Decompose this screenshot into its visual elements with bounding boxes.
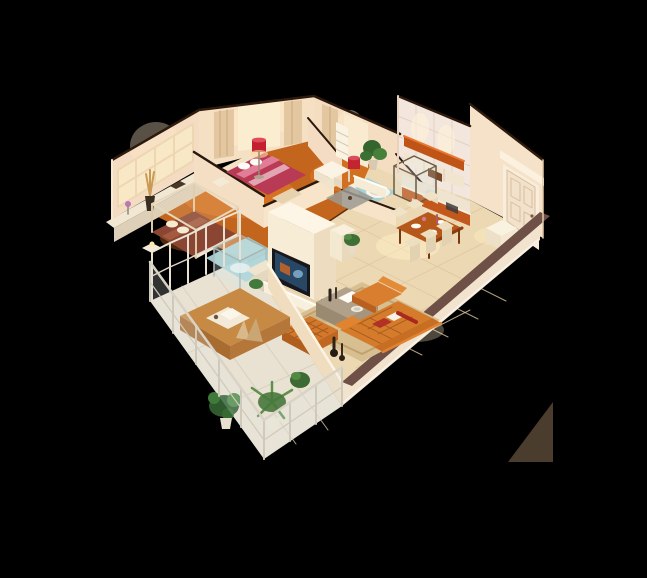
dining-flowers — [422, 217, 426, 221]
hall-plant-highlight — [344, 234, 352, 240]
kitchen-arch-glow-1 — [411, 113, 429, 143]
red-floor-lamp-top — [252, 138, 266, 143]
curtain-left — [214, 109, 234, 159]
flower-accent — [125, 201, 131, 207]
floor-vase-2 — [339, 355, 345, 361]
dish-1 — [411, 224, 421, 229]
render-stage — [0, 0, 647, 578]
study-plant-2 — [373, 148, 387, 160]
floorplan-render — [0, 0, 647, 578]
red-floor-lamp-base — [254, 175, 264, 179]
tv-screen-blue — [293, 270, 303, 278]
door-knob — [530, 214, 533, 217]
bed1-pillow-1 — [166, 221, 178, 228]
shower-b-tray — [230, 263, 250, 273]
hall-plant-pot — [348, 246, 356, 253]
palm-2-highlight — [291, 372, 301, 380]
floor-vase-1 — [330, 349, 338, 357]
bed2-pillow-2 — [250, 159, 262, 166]
parapet-plant — [249, 279, 263, 289]
study-rug-item — [348, 196, 352, 200]
coffee-table-bowl-inner — [354, 307, 361, 310]
bookshelf — [336, 122, 348, 162]
bed1-pillow-2 — [177, 227, 189, 234]
monstera-pot — [220, 418, 232, 429]
study-plant-3 — [360, 151, 372, 161]
red-drum-table-top — [348, 156, 360, 160]
bed2-pillow-1 — [238, 163, 250, 170]
balcony-table-item — [214, 315, 218, 319]
curtain-right — [284, 100, 302, 146]
bed1-sidetable-lamp — [150, 242, 155, 247]
